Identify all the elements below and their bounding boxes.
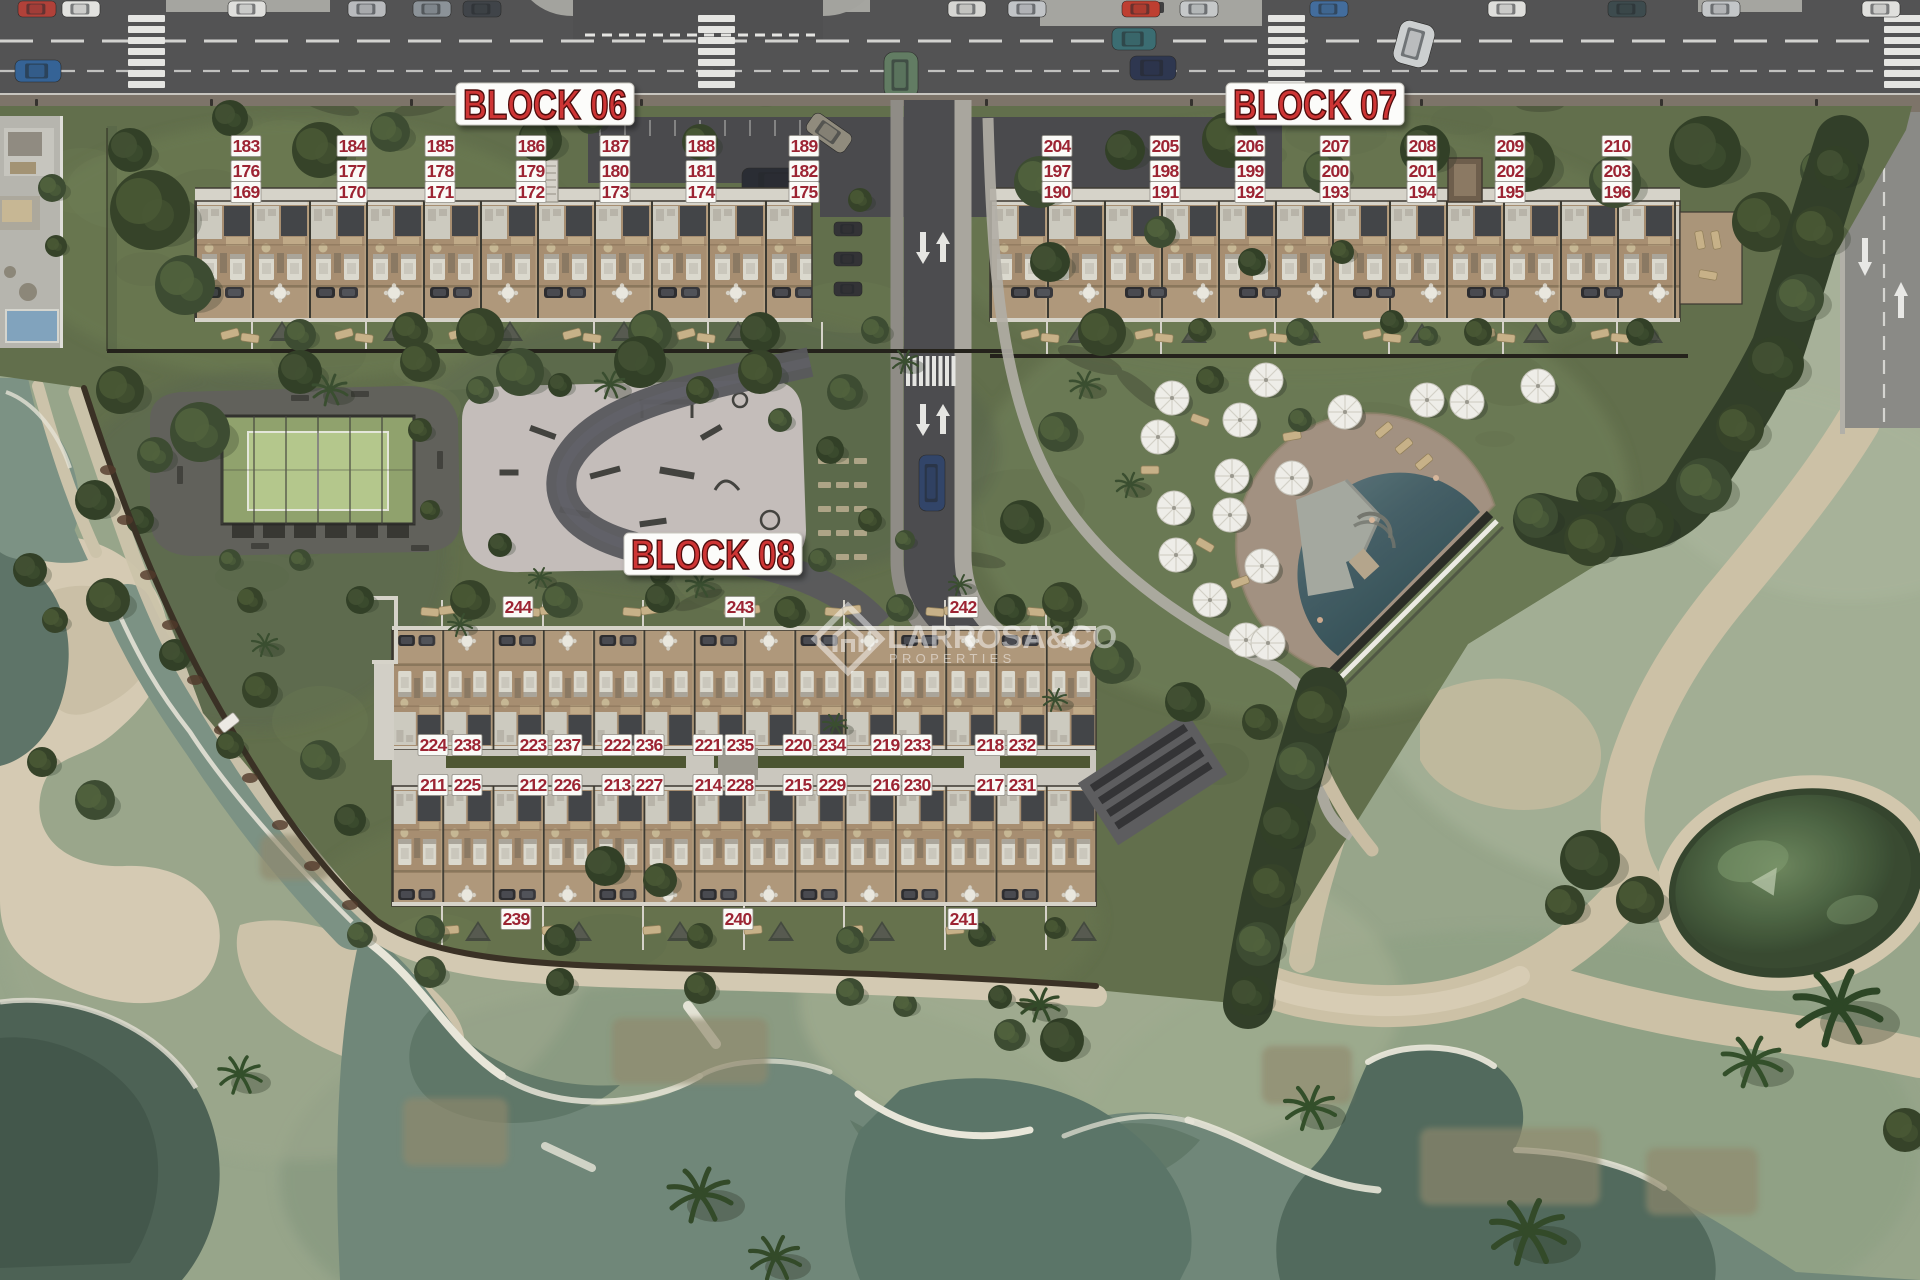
svg-text:188: 188 [688, 136, 716, 156]
svg-text:203: 203 [1604, 161, 1632, 181]
svg-text:171: 171 [427, 182, 455, 202]
svg-text:182: 182 [791, 161, 819, 181]
svg-text:183: 183 [233, 136, 261, 156]
svg-text:227: 227 [636, 775, 663, 795]
svg-text:186: 186 [518, 136, 546, 156]
svg-text:176: 176 [233, 161, 261, 181]
svg-text:199: 199 [1237, 161, 1265, 181]
svg-text:213: 213 [604, 775, 632, 795]
svg-text:243: 243 [727, 597, 755, 617]
svg-text:233: 233 [904, 735, 932, 755]
svg-text:244: 244 [505, 597, 533, 617]
svg-text:240: 240 [725, 909, 753, 929]
svg-text:197: 197 [1044, 161, 1071, 181]
svg-text:224: 224 [420, 735, 448, 755]
svg-text:239: 239 [503, 909, 531, 929]
svg-text:187: 187 [602, 136, 629, 156]
svg-text:210: 210 [1604, 136, 1632, 156]
svg-text:193: 193 [1322, 182, 1350, 202]
svg-text:195: 195 [1497, 182, 1525, 202]
svg-text:177: 177 [339, 161, 366, 181]
svg-text:170: 170 [339, 182, 367, 202]
svg-text:238: 238 [454, 735, 482, 755]
svg-text:189: 189 [791, 136, 819, 156]
svg-text:212: 212 [520, 775, 548, 795]
svg-text:172: 172 [518, 182, 546, 202]
svg-text:200: 200 [1322, 161, 1350, 181]
svg-text:208: 208 [1409, 136, 1437, 156]
svg-text:229: 229 [819, 775, 847, 795]
svg-text:169: 169 [233, 182, 261, 202]
svg-text:173: 173 [602, 182, 630, 202]
svg-text:217: 217 [977, 775, 1004, 795]
svg-text:225: 225 [454, 775, 482, 795]
svg-text:174: 174 [688, 182, 716, 202]
svg-text:242: 242 [950, 597, 978, 617]
svg-text:241: 241 [950, 909, 978, 929]
svg-text:194: 194 [1409, 182, 1437, 202]
svg-text:202: 202 [1497, 161, 1525, 181]
svg-text:209: 209 [1497, 136, 1525, 156]
svg-text:181: 181 [688, 161, 716, 181]
svg-text:179: 179 [518, 161, 546, 181]
svg-text:175: 175 [791, 182, 819, 202]
svg-text:215: 215 [785, 775, 813, 795]
svg-text:LARROSA&CO: LARROSA&CO [887, 619, 1117, 655]
svg-text:198: 198 [1152, 161, 1180, 181]
svg-text:234: 234 [819, 735, 847, 755]
svg-text:184: 184 [339, 136, 367, 156]
svg-text:PROPERTIES: PROPERTIES [889, 651, 1016, 666]
svg-text:206: 206 [1237, 136, 1265, 156]
svg-text:BLOCK 08: BLOCK 08 [631, 531, 795, 578]
svg-text:190: 190 [1044, 182, 1072, 202]
svg-text:196: 196 [1604, 182, 1632, 202]
svg-text:204: 204 [1044, 136, 1072, 156]
svg-text:236: 236 [636, 735, 664, 755]
svg-text:185: 185 [427, 136, 455, 156]
svg-text:232: 232 [1009, 735, 1037, 755]
svg-text:205: 205 [1152, 136, 1180, 156]
svg-text:228: 228 [727, 775, 755, 795]
svg-text:226: 226 [554, 775, 582, 795]
svg-text:216: 216 [873, 775, 901, 795]
svg-text:237: 237 [554, 735, 581, 755]
svg-text:222: 222 [604, 735, 632, 755]
svg-text:221: 221 [695, 735, 723, 755]
svg-text:178: 178 [427, 161, 455, 181]
svg-text:214: 214 [695, 775, 723, 795]
svg-text:235: 235 [727, 735, 755, 755]
svg-text:219: 219 [873, 735, 901, 755]
svg-text:218: 218 [977, 735, 1005, 755]
svg-text:192: 192 [1237, 182, 1265, 202]
svg-text:220: 220 [785, 735, 813, 755]
svg-text:201: 201 [1409, 161, 1437, 181]
svg-text:191: 191 [1152, 182, 1180, 202]
svg-text:223: 223 [520, 735, 548, 755]
svg-text:211: 211 [420, 775, 447, 795]
svg-text:231: 231 [1009, 775, 1037, 795]
svg-text:180: 180 [602, 161, 630, 181]
svg-text:207: 207 [1322, 136, 1349, 156]
svg-text:230: 230 [904, 775, 932, 795]
svg-text:BLOCK 06: BLOCK 06 [463, 81, 627, 128]
svg-text:BLOCK 07: BLOCK 07 [1233, 81, 1397, 128]
